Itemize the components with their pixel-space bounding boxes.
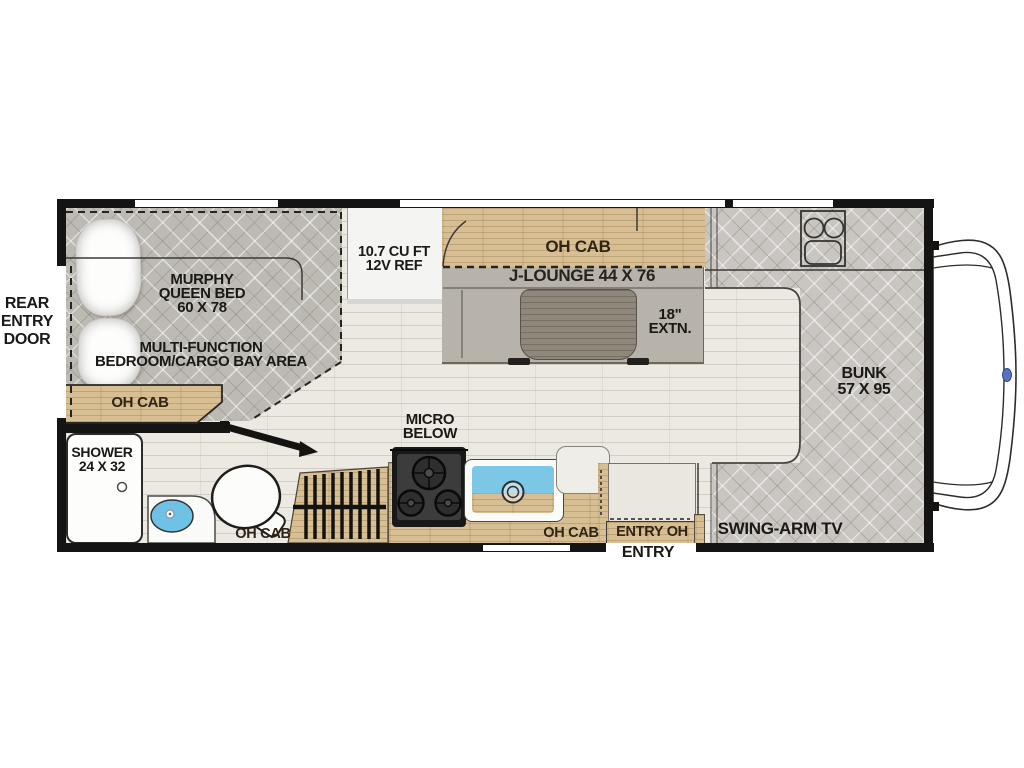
rear-entry-door-label: REAR ENTRY DOOR — [1, 295, 53, 349]
entry-label: ENTRY — [622, 545, 674, 561]
extension-label: 18" EXTN. — [649, 308, 692, 336]
pillow — [75, 218, 143, 317]
bunk-ladder — [288, 466, 388, 543]
murphy-bed-label: MURPHY QUEEN BED 60 X 78 — [159, 273, 245, 315]
kitchen-sink-basin — [472, 466, 554, 493]
lounge-foot — [508, 358, 530, 365]
oh-cab-kitchen-label: OH CAB — [543, 526, 598, 541]
bathroom-wall — [57, 422, 230, 433]
shower-label: SHOWER 24 X 32 — [71, 445, 132, 473]
refrigerator-base — [347, 299, 442, 304]
window-opening — [733, 200, 833, 207]
window-opening — [483, 545, 570, 551]
cab-front — [933, 240, 1016, 511]
lounge-foot — [627, 358, 649, 365]
hood-lines — [933, 265, 992, 485]
micro-below-label: MICRO BELOW — [403, 413, 457, 441]
entry-alcove — [608, 463, 696, 523]
j-lounge-label: J-LOUNGE 44 X 76 — [509, 268, 655, 284]
kitchen-sink-cover — [472, 493, 554, 513]
swing-arm-tv-label: SWING-ARM TV — [718, 521, 843, 537]
brand-logo-icon — [1003, 369, 1012, 382]
oh-cab-bedroom-label: OH CAB — [111, 396, 168, 410]
rv-floorplan: REAR ENTRY DOOR MURPHY QUEEN BED 60 X 78… — [0, 0, 1024, 768]
entry-oh-label: ENTRY OH — [616, 525, 688, 540]
window-opening — [135, 200, 278, 207]
rear-door-opening — [57, 266, 66, 418]
dinette-table — [520, 289, 637, 360]
windshield-line — [933, 252, 1004, 497]
fridge-label: 10.7 CU FT 12V REF — [358, 246, 430, 273]
oh-cab-bath-label: OH CAB — [235, 527, 290, 542]
oh-cab-dinette-label: OH CAB — [545, 239, 610, 255]
multi-function-label: MULTI-FUNCTION BEDROOM/CARGO BAY AREA — [95, 341, 307, 368]
stove-top — [397, 454, 461, 520]
exterior-wall-right — [924, 199, 933, 552]
bunk-label: BUNK 57 X 95 — [837, 366, 890, 397]
entry-side-post — [694, 514, 705, 545]
window-opening — [400, 200, 725, 207]
